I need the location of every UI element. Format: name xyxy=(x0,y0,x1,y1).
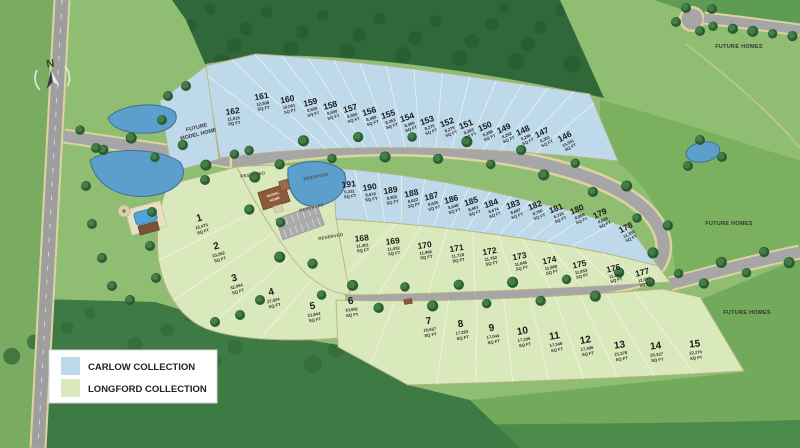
tree-icon xyxy=(717,152,727,162)
tree-icon xyxy=(275,159,285,169)
tree-icon xyxy=(307,259,317,269)
tree-icon xyxy=(235,310,245,320)
tree-icon xyxy=(427,300,438,311)
tree-icon xyxy=(407,132,417,142)
tree-icon xyxy=(695,135,705,145)
tree-icon xyxy=(347,280,358,291)
tree-icon xyxy=(87,219,97,229)
tree-icon xyxy=(570,159,580,169)
tree-icon xyxy=(516,145,526,155)
future-homes-label: FUTURE HOMES xyxy=(715,44,763,50)
tree-icon xyxy=(75,125,85,135)
tree-icon xyxy=(681,3,691,13)
tree-icon xyxy=(482,299,492,309)
site-plan-map: MODEL HOME FUTURE MODEL HOME RESERVED RE… xyxy=(0,0,800,448)
tree-icon xyxy=(276,218,286,228)
tree-icon xyxy=(784,257,795,268)
tree-icon xyxy=(716,257,727,268)
tree-icon xyxy=(81,181,91,191)
tree-icon xyxy=(150,153,160,163)
tree-icon xyxy=(353,132,363,142)
tree-icon xyxy=(590,291,601,302)
tree-icon xyxy=(126,133,137,144)
tree-icon xyxy=(298,135,309,146)
tree-icon xyxy=(200,160,211,171)
tree-icon xyxy=(663,220,673,230)
tree-icon xyxy=(454,280,464,290)
kiosk xyxy=(404,298,413,304)
playground-equipment-icon xyxy=(122,209,125,212)
tree-icon xyxy=(621,180,632,191)
tree-icon xyxy=(125,295,135,305)
legend-label-carlow: CARLOW COLLECTION xyxy=(88,362,195,373)
tree-icon xyxy=(674,269,684,279)
tree-icon xyxy=(507,277,518,288)
tree-icon xyxy=(147,207,157,217)
tree-icon xyxy=(699,278,709,288)
tree-icon xyxy=(538,169,549,180)
tree-icon xyxy=(742,268,752,278)
tree-icon xyxy=(708,21,718,31)
tree-icon xyxy=(647,247,658,258)
lot-168[interactable]: 16811,401SQ FT xyxy=(354,232,370,253)
tree-icon xyxy=(380,151,391,162)
compass-north-label: N xyxy=(46,58,56,71)
tree-icon xyxy=(374,303,384,313)
site-plan: MODEL HOME FUTURE MODEL HOME RESERVED RE… xyxy=(0,0,800,448)
tree-icon xyxy=(728,24,738,34)
tree-icon xyxy=(768,29,778,39)
legend-swatch-longford xyxy=(61,379,80,397)
tree-icon xyxy=(486,160,496,170)
tree-icon xyxy=(695,26,705,36)
tree-icon xyxy=(707,4,717,14)
tree-icon xyxy=(200,175,210,185)
tree-icon xyxy=(107,281,117,291)
tree-icon xyxy=(327,154,337,164)
tree-icon xyxy=(181,81,191,91)
tree-icon xyxy=(588,187,598,197)
tree-icon xyxy=(536,296,546,306)
tree-icon xyxy=(562,275,572,285)
tree-icon xyxy=(230,149,240,159)
tree-icon xyxy=(683,161,693,171)
tree-icon xyxy=(151,273,161,283)
legend-swatch-carlow xyxy=(61,357,80,375)
tree-icon xyxy=(671,17,681,27)
future-homes-label: FUTURE HOMES xyxy=(705,221,753,227)
tree-icon xyxy=(255,295,265,305)
tree-icon xyxy=(97,253,107,263)
tree-icon xyxy=(244,146,254,156)
tree-icon xyxy=(433,154,443,164)
future-homes-label: FUTURE HOMES xyxy=(723,310,771,316)
tree-icon xyxy=(759,247,769,257)
tree-icon xyxy=(145,241,155,251)
tree-icon xyxy=(163,91,173,101)
tree-icon xyxy=(91,143,101,153)
tree-icon xyxy=(274,251,285,262)
tree-icon xyxy=(157,115,167,125)
tree-icon xyxy=(210,317,220,327)
legend: CARLOW COLLECTION LONGFORD COLLECTION xyxy=(49,350,217,403)
tree-icon xyxy=(317,290,327,300)
tree-icon xyxy=(632,213,642,223)
legend-label-longford: LONGFORD COLLECTION xyxy=(88,384,207,395)
lot-169[interactable]: 16911,432SQ FT xyxy=(385,235,402,256)
tree-icon xyxy=(400,282,410,292)
tree-icon xyxy=(244,204,254,214)
tree-icon xyxy=(747,26,758,37)
tree-icon xyxy=(787,31,797,41)
